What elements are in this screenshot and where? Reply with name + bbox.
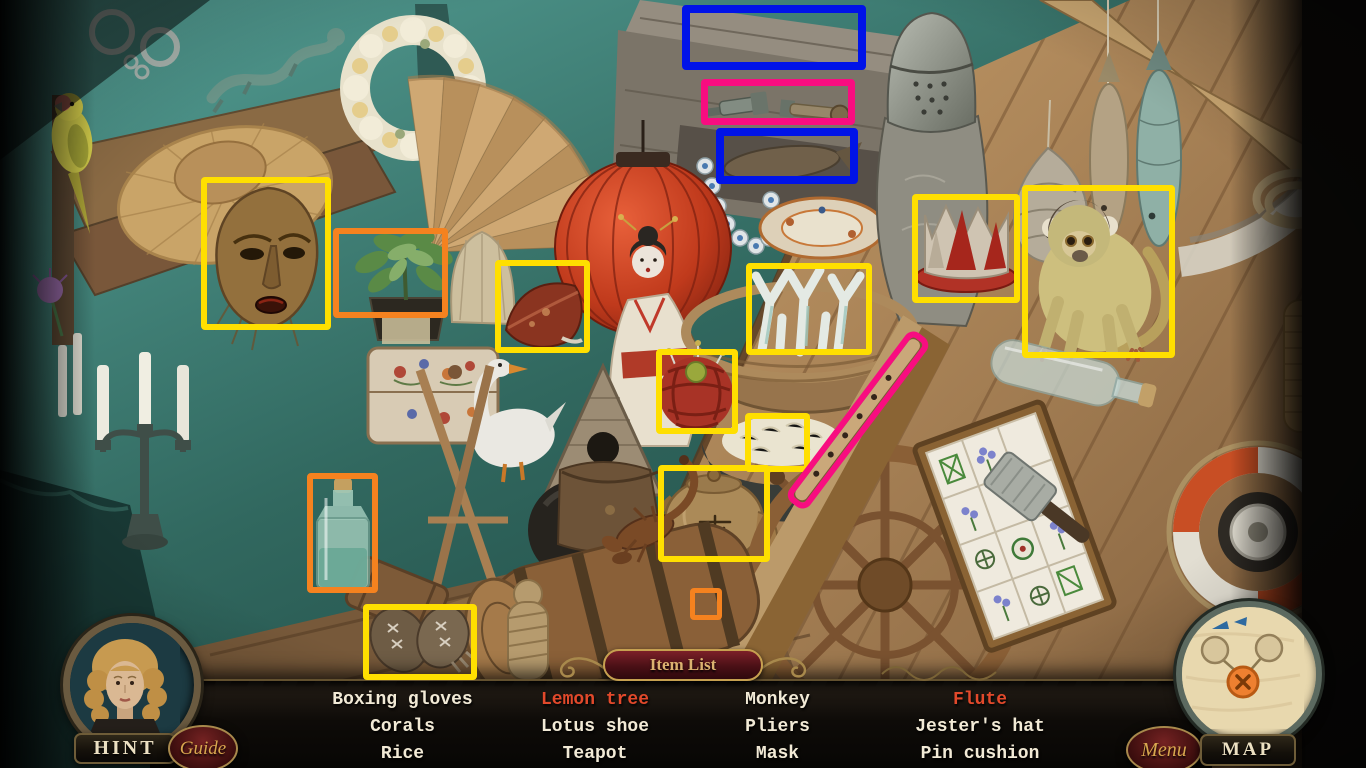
game-screen: Item List Boxing glovesCoralsRiceLemon t… (0, 0, 1366, 768)
item-list-column-4: FluteJester's hatPin cushion (870, 687, 1090, 768)
item-lemon-tree: Lemon tree (541, 687, 649, 714)
annotation-mask[interactable] (201, 177, 331, 330)
annotation-glass-bottle[interactable] (307, 473, 378, 593)
annotation-pin-cushion[interactable] (656, 349, 738, 434)
item-jester-s-hat: Jester's hat (915, 714, 1045, 741)
item-list-banner: Item List (603, 649, 763, 681)
annotation-lemon-seeds[interactable] (690, 588, 722, 620)
annotation-corals[interactable] (746, 263, 872, 355)
annotation-rice[interactable] (745, 413, 810, 472)
menu-button[interactable]: Menu (1126, 726, 1202, 768)
annotation-lemon-tree[interactable] (333, 228, 448, 318)
item-pin-cushion: Pin cushion (921, 741, 1040, 768)
item-list-column-2: Lemon treeLotus shoeTeapot (505, 687, 685, 768)
annotation-plank-top-area[interactable] (682, 5, 866, 70)
minimap[interactable] (1176, 601, 1322, 747)
portrait-woman-icon (70, 623, 180, 733)
annotation-chest-lid-area[interactable] (716, 128, 858, 184)
item-list-title: Item List (650, 655, 717, 674)
item-monkey: Monkey (745, 687, 810, 714)
map-node-icon (1202, 637, 1228, 663)
annotation-boxing-gloves[interactable] (363, 604, 477, 680)
annotation-lotus-shoe[interactable] (495, 260, 590, 353)
item-teapot: Teapot (563, 741, 628, 768)
item-mask: Mask (756, 741, 799, 768)
item-rice: Rice (381, 741, 424, 768)
banner-right-flourish-icon (758, 650, 818, 684)
guide-button[interactable]: Guide (168, 725, 238, 768)
annotation-monkey[interactable] (1022, 185, 1175, 358)
hint-button[interactable]: HINT (74, 733, 176, 764)
item-boxing-gloves: Boxing gloves (332, 687, 472, 714)
item-pliers: Pliers (745, 714, 810, 741)
bar-filigree-icon (880, 658, 1000, 684)
map-button[interactable]: MAP (1200, 734, 1296, 766)
item-list: Boxing glovesCoralsRiceLemon treeLotus s… (300, 687, 1090, 767)
minimap-content (1182, 607, 1304, 729)
item-lotus-shoe: Lotus shoe (541, 714, 649, 741)
annotation-pliers[interactable] (701, 79, 855, 125)
item-flute: Flute (953, 687, 1007, 714)
item-corals: Corals (370, 714, 435, 741)
item-list-column-1: Boxing glovesCoralsRice (300, 687, 505, 768)
item-list-column-3: MonkeyPliersMask (685, 687, 870, 768)
map-node-icon (1256, 635, 1282, 661)
annotation-teapot[interactable] (658, 465, 770, 562)
banner-left-flourish-icon (548, 650, 608, 684)
annotation-jesters-hat[interactable] (912, 194, 1020, 303)
